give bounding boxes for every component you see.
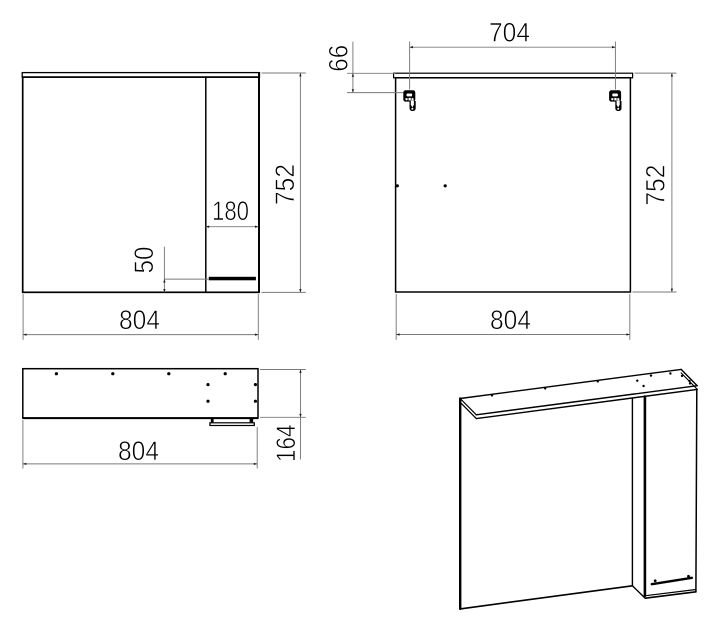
svg-text:180: 180: [212, 196, 249, 226]
svg-text:804: 804: [490, 305, 531, 335]
svg-text:164: 164: [271, 424, 301, 462]
svg-text:752: 752: [641, 165, 671, 206]
svg-text:804: 804: [119, 305, 160, 335]
svg-text:50: 50: [129, 247, 159, 274]
svg-text:66: 66: [323, 45, 353, 72]
svg-text:804: 804: [118, 436, 159, 466]
svg-text:704: 704: [489, 18, 530, 48]
svg-text:752: 752: [270, 164, 300, 205]
